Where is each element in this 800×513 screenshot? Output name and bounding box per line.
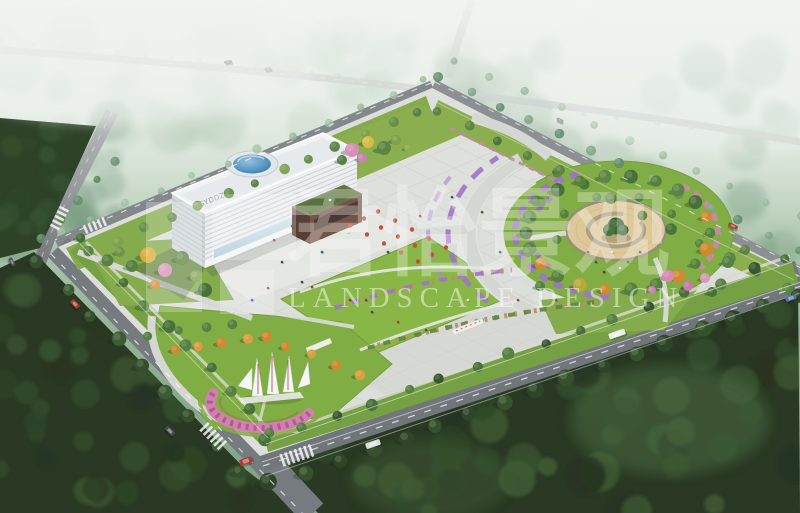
fog-veil <box>0 0 800 513</box>
rendering-stage: GYDDZ 君怡景观 LANDSCAPE DESIGN <box>0 0 800 513</box>
aerial-rendering-canvas: GYDDZ <box>0 0 800 513</box>
